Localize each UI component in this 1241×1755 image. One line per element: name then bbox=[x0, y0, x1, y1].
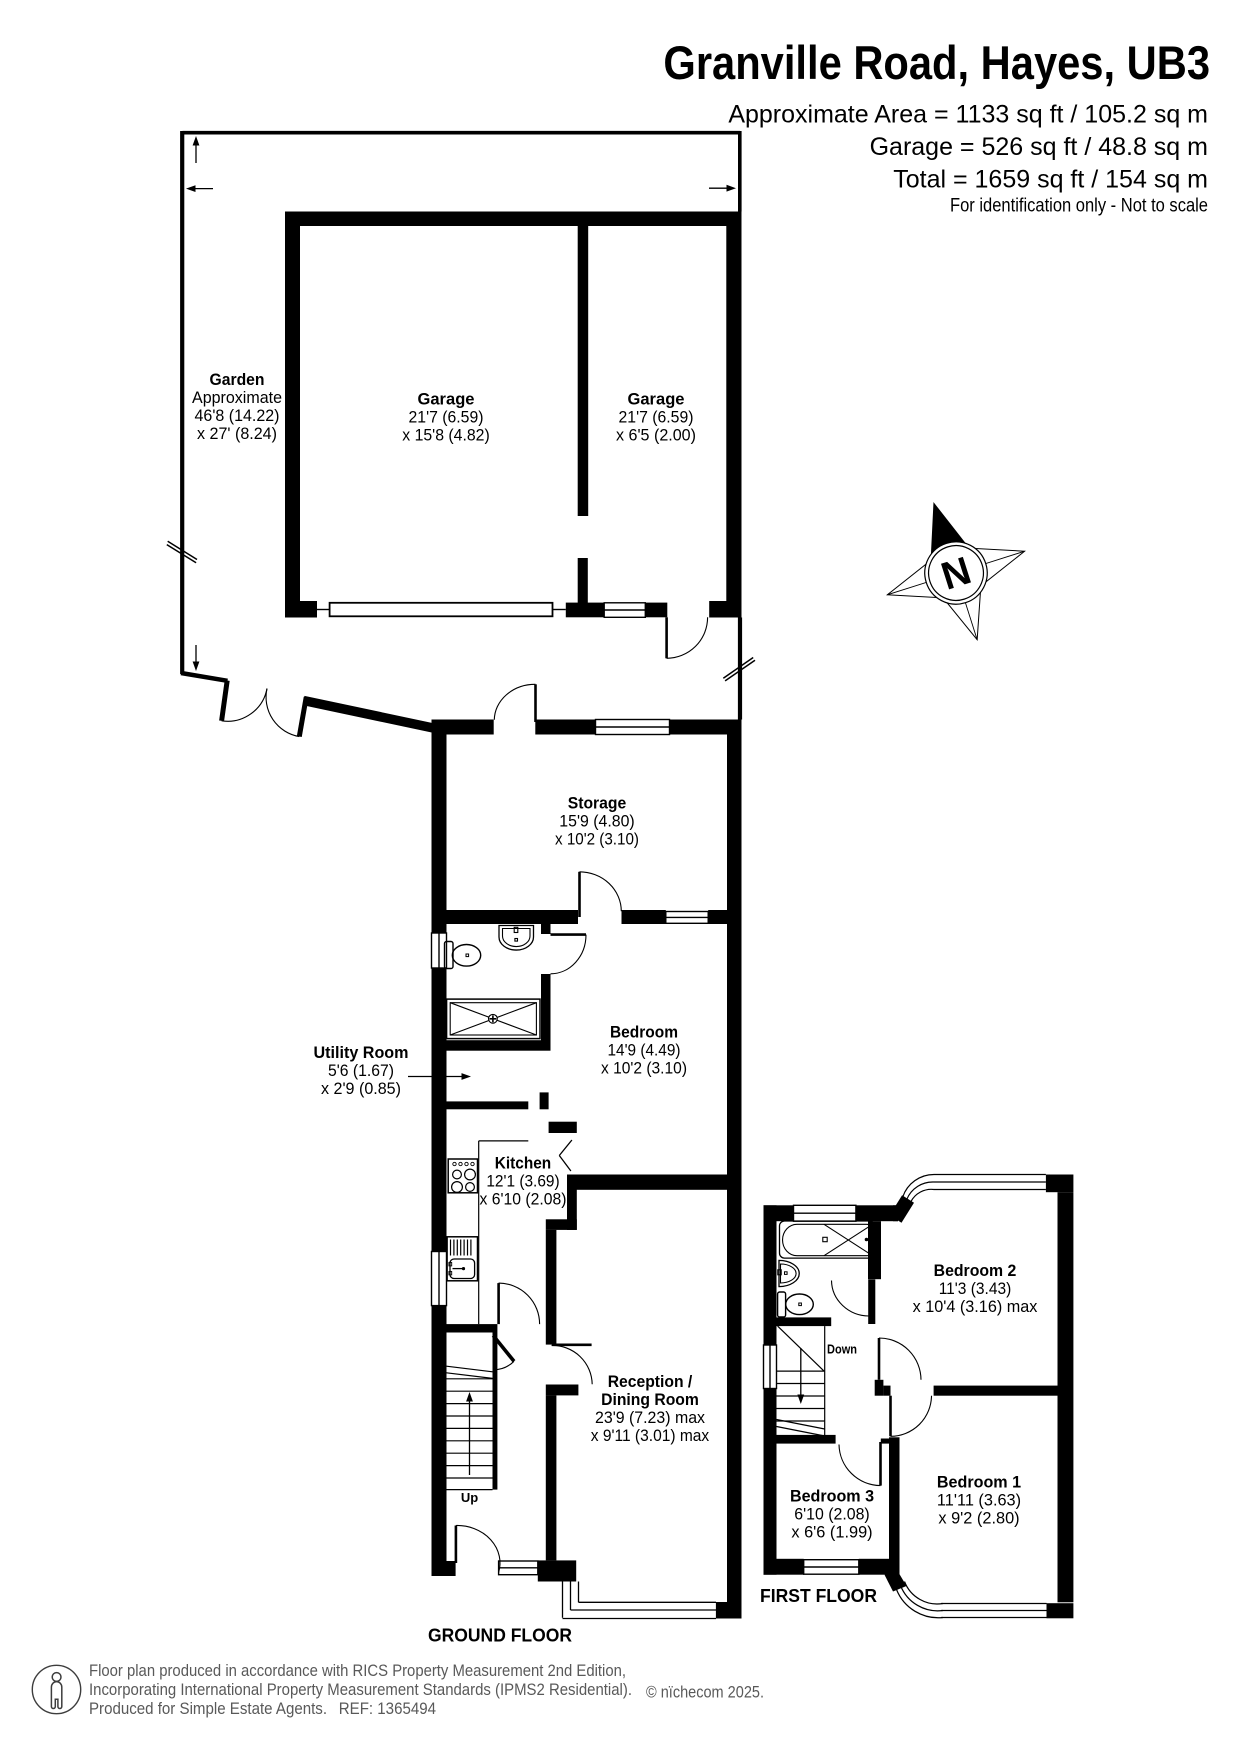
svg-text:x 6'5 (2.00): x 6'5 (2.00) bbox=[616, 426, 696, 445]
svg-text:x 10'2 (3.10): x 10'2 (3.10) bbox=[555, 830, 639, 849]
svg-text:21'7 (6.59): 21'7 (6.59) bbox=[619, 408, 694, 427]
svg-text:Reception /: Reception / bbox=[608, 1372, 693, 1391]
svg-text:Incorporating International Pr: Incorporating International Property Mea… bbox=[89, 1681, 632, 1699]
svg-text:Bedroom 1: Bedroom 1 bbox=[937, 1473, 1021, 1492]
svg-text:Granville Road, Hayes, UB3: Granville Road, Hayes, UB3 bbox=[663, 38, 1210, 90]
svg-text:Garden: Garden bbox=[210, 370, 265, 389]
svg-text:x 10'4 (3.16) max: x 10'4 (3.16) max bbox=[913, 1297, 1038, 1316]
svg-text:Bedroom: Bedroom bbox=[610, 1023, 678, 1042]
svg-text:14'9 (4.49): 14'9 (4.49) bbox=[608, 1041, 681, 1060]
svg-text:x 9'2 (2.80): x 9'2 (2.80) bbox=[938, 1509, 1019, 1528]
svg-text:46'8 (14.22): 46'8 (14.22) bbox=[195, 406, 280, 425]
svg-text:Utility Room: Utility Room bbox=[314, 1043, 409, 1062]
svg-text:12'1 (3.69): 12'1 (3.69) bbox=[486, 1172, 559, 1191]
svg-text:FIRST FLOOR: FIRST FLOOR bbox=[760, 1585, 877, 1606]
svg-text:Garage = 526 sq ft / 48.8 sq m: Garage = 526 sq ft / 48.8 sq m bbox=[870, 133, 1208, 161]
svg-text:5'6 (1.67): 5'6 (1.67) bbox=[328, 1061, 394, 1080]
svg-text:Total = 1659 sq ft / 154 sq m: Total = 1659 sq ft / 154 sq m bbox=[893, 166, 1208, 194]
svg-text:Floor plan produced in accorda: Floor plan produced in accordance with R… bbox=[89, 1662, 626, 1680]
svg-text:x 15'8 (4.82): x 15'8 (4.82) bbox=[402, 426, 490, 445]
svg-text:Approximate Area = 1133 sq ft: Approximate Area = 1133 sq ft / 105.2 sq… bbox=[728, 101, 1208, 129]
svg-text:Garage: Garage bbox=[628, 390, 685, 409]
svg-text:Down: Down bbox=[827, 1342, 857, 1357]
svg-text:Garage: Garage bbox=[418, 390, 475, 409]
svg-text:Dining Room: Dining Room bbox=[601, 1390, 699, 1409]
svg-text:Up: Up bbox=[461, 1490, 478, 1505]
svg-text:For identification only - Not: For identification only - Not to scale bbox=[950, 196, 1208, 217]
svg-text:x 2'9 (0.85): x 2'9 (0.85) bbox=[321, 1079, 401, 1098]
svg-text:x 6'6 (1.99): x 6'6 (1.99) bbox=[791, 1523, 872, 1542]
svg-text:Kitchen: Kitchen bbox=[495, 1154, 551, 1173]
svg-text:21'7 (6.59): 21'7 (6.59) bbox=[409, 408, 484, 427]
svg-text:15'9 (4.80): 15'9 (4.80) bbox=[559, 812, 634, 831]
svg-text:6'10 (2.08): 6'10 (2.08) bbox=[794, 1505, 869, 1524]
svg-text:Bedroom 3: Bedroom 3 bbox=[790, 1487, 874, 1506]
svg-text:GROUND FLOOR: GROUND FLOOR bbox=[428, 1625, 572, 1646]
svg-text:x 10'2 (3.10): x 10'2 (3.10) bbox=[601, 1059, 687, 1078]
svg-text:11'11 (3.63): 11'11 (3.63) bbox=[937, 1491, 1021, 1510]
svg-text:23'9 (7.23) max: 23'9 (7.23) max bbox=[595, 1408, 705, 1427]
svg-text:x 9'11 (3.01) max: x 9'11 (3.01) max bbox=[591, 1426, 710, 1445]
svg-text:x 6'10 (2.08): x 6'10 (2.08) bbox=[480, 1190, 567, 1209]
svg-text:Storage: Storage bbox=[568, 794, 627, 813]
svg-text:11'3 (3.43): 11'3 (3.43) bbox=[939, 1279, 1012, 1298]
svg-text:Approximate: Approximate bbox=[192, 388, 282, 407]
svg-text:Produced for Simple Estate Age: Produced for Simple Estate Agents. REF: … bbox=[89, 1700, 436, 1718]
svg-text:© nïchecom 2025.: © nïchecom 2025. bbox=[646, 1684, 764, 1702]
svg-text:Bedroom 2: Bedroom 2 bbox=[934, 1261, 1017, 1280]
svg-text:x 27' (8.24): x 27' (8.24) bbox=[197, 424, 277, 443]
